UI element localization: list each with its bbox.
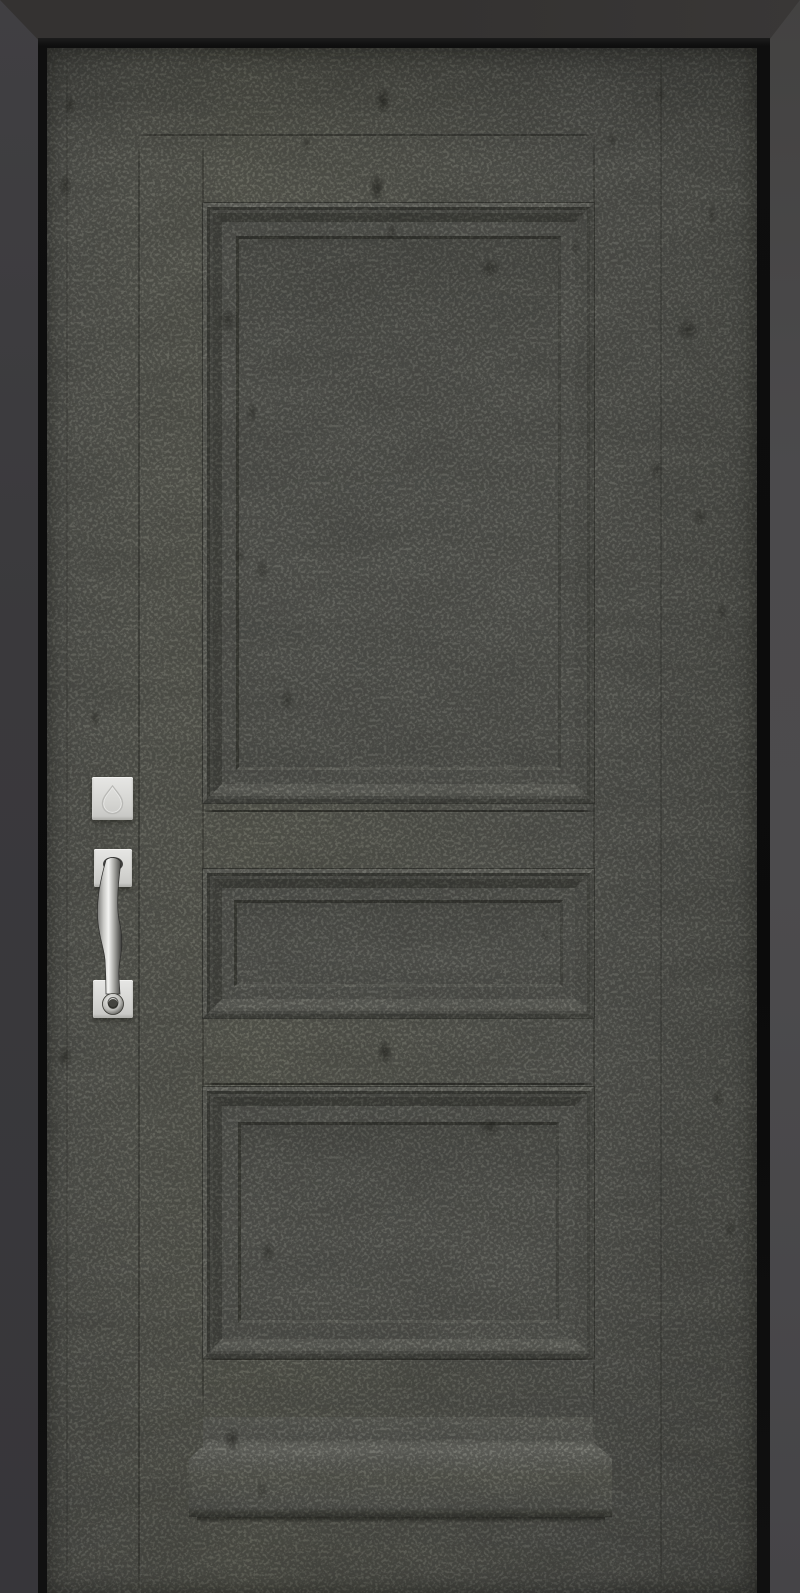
stile-seam-right bbox=[660, 48, 662, 1593]
handle-grip bbox=[87, 848, 147, 1073]
bottom-panel bbox=[202, 1086, 595, 1359]
deadbolt-escutcheon bbox=[92, 777, 133, 820]
top-panel bbox=[202, 202, 595, 804]
plinth-shadow bbox=[197, 1517, 605, 1523]
top-panel-face bbox=[239, 239, 558, 767]
rail-seam-1 bbox=[202, 810, 595, 812]
keyhole-teardrop-emboss bbox=[92, 777, 133, 820]
top-rail-seam bbox=[138, 134, 595, 136]
plank-seam bbox=[66, 48, 68, 1593]
panel-molding bbox=[203, 1087, 594, 1358]
door-slab bbox=[47, 48, 757, 1593]
grip-body bbox=[97, 858, 122, 994]
door-render-scene bbox=[0, 0, 800, 1593]
middle-panel bbox=[202, 868, 595, 1019]
plinth-base bbox=[189, 1417, 612, 1517]
panel-molding bbox=[203, 869, 594, 1018]
panel-molding bbox=[203, 203, 594, 803]
rail-seam-2 bbox=[202, 1083, 595, 1085]
bottom-panel-face bbox=[241, 1125, 556, 1320]
middle-panel-face bbox=[237, 903, 560, 984]
